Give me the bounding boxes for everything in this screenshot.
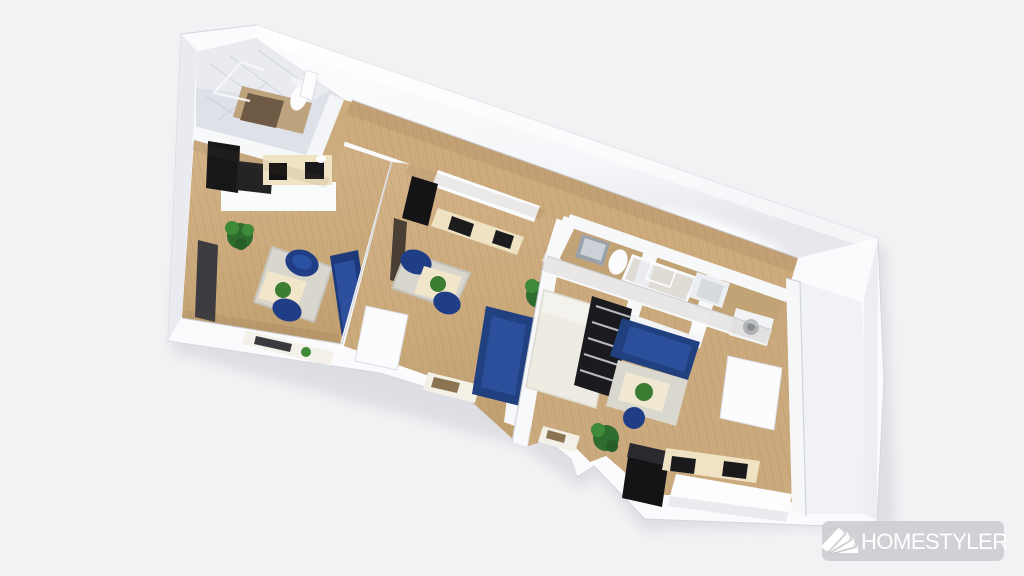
svg-text:HOMESTYLER: HOMESTYLER — [861, 529, 1008, 554]
